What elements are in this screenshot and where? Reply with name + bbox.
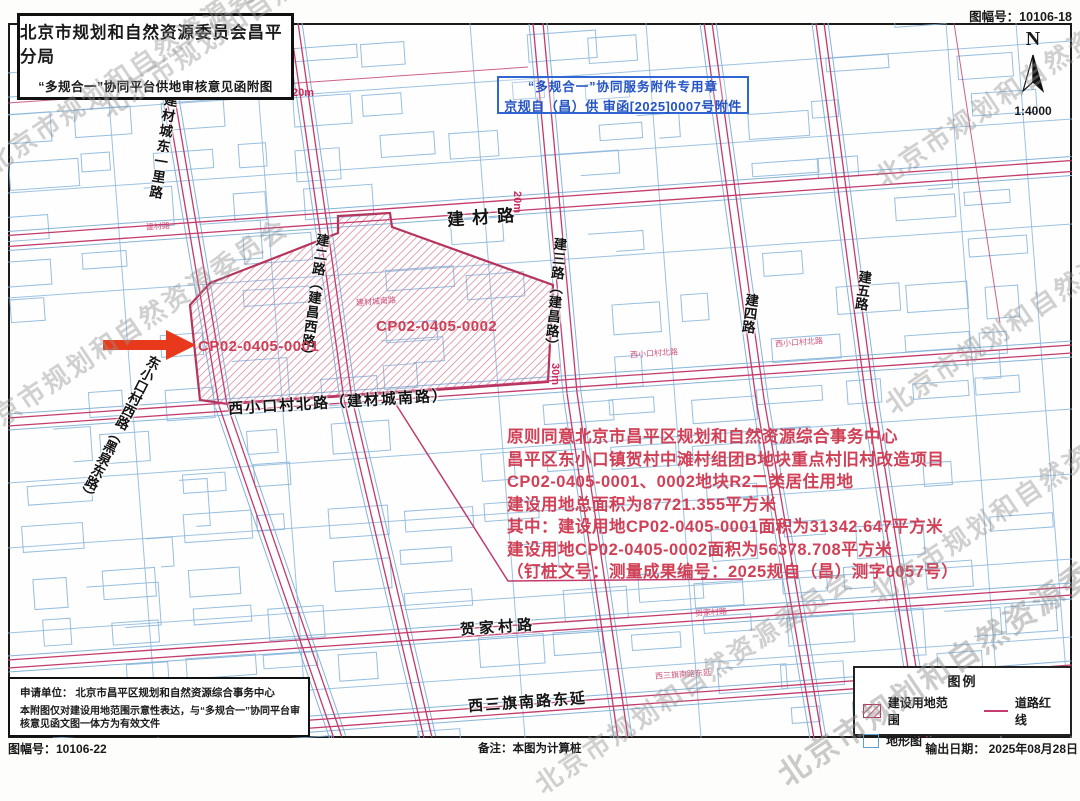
- page-title: 北京市规划和自然资源委员会昌平分局: [20, 19, 291, 67]
- validity-note: 本附图仅对建设用地范围示意性表达，与“多规合一”协同平台审核意见函文图一体方为有…: [20, 705, 300, 731]
- annotation-line: 建设用地总面积为87721.355平方米: [507, 494, 958, 517]
- dim-30m: 30m: [549, 363, 561, 385]
- legend: 图例 建设用地范围 道路红线 地形图: [853, 666, 1072, 736]
- sheet-number-top: 图幅号：10106-18: [905, 6, 1072, 25]
- approval-annotation: 原则同意北京市昌平区规划和自然资源综合事务中心 昌平区东小口镇贺村中滩村组团B地…: [507, 426, 958, 584]
- legend-item-label: 道路红线: [1015, 694, 1062, 728]
- applicant-line: 申请单位： 北京市昌平区规划和自然资源综合事务中心: [20, 685, 300, 700]
- annotation-line: 昌平区东小口镇贺村中滩村组团B地块重点村旧村改造项目: [507, 449, 958, 472]
- dim-20m-a: 20m: [292, 87, 314, 99]
- stamp-line1: “多规合一”协同服务附件专用章: [499, 76, 747, 95]
- applicant-info-box: 申请单位： 北京市昌平区规划和自然资源综合事务中心 本附图仅对建设用地范围示意性…: [8, 677, 310, 737]
- legend-title: 图例: [863, 671, 1062, 690]
- title-block: 北京市规划和自然资源委员会昌平分局 “多规合一”协同平台供地审核意见函附图: [17, 13, 294, 100]
- annotation-line: 其中：建设用地CP02-0405-0001面积为31342.647平方米: [507, 516, 958, 539]
- legend-hatch-swatch: [863, 704, 881, 718]
- north-label: N: [1002, 28, 1064, 51]
- dim-20m-b: 20m: [511, 191, 523, 213]
- remark-note: 备注：本图为计算桩: [478, 740, 582, 756]
- parcel-label-0002: CP02-0405-0002: [376, 318, 497, 335]
- approval-stamp: “多规合一”协同服务附件专用章 京规自（昌）供 审函[2025]0007号附件: [497, 76, 749, 114]
- output-date: 输出日期： 2025年08月28日: [895, 740, 1078, 757]
- legend-redline-swatch: [984, 710, 1008, 712]
- sheet-number-bottom: 图幅号：10106-22: [8, 740, 107, 757]
- annotation-line: （钉桩文号：测量成果编号：2025规自（昌）测字0057号）: [507, 561, 958, 584]
- scanned-planning-map-page: { "page": { "sheet_no_top": "图幅号：10106-1…: [0, 0, 1080, 757]
- legend-item-label: 建设用地范围: [888, 694, 959, 728]
- annotation-line: 建设用地CP02-0405-0002面积为56378.708平方米: [507, 539, 958, 562]
- compass: N 1:4000: [1002, 28, 1064, 118]
- page-subtitle: “多规合一”协同平台供地审核意见函附图: [38, 76, 273, 95]
- minor-road-label: 贺家村路: [695, 606, 728, 619]
- annotation-line: CP02-0405-0001、0002地块R2二类居住用地: [507, 471, 958, 494]
- parcel-label-0001: CP02-0405-0001: [198, 338, 319, 355]
- map-scale: 1:4000: [1002, 104, 1064, 118]
- north-arrow-icon: [1018, 53, 1048, 95]
- stamp-line2: 京规自（昌）供 审函[2025]0007号附件: [499, 96, 747, 115]
- legend-topo-swatch: [863, 734, 879, 748]
- annotation-line: 原则同意北京市昌平区规划和自然资源综合事务中心: [507, 426, 958, 449]
